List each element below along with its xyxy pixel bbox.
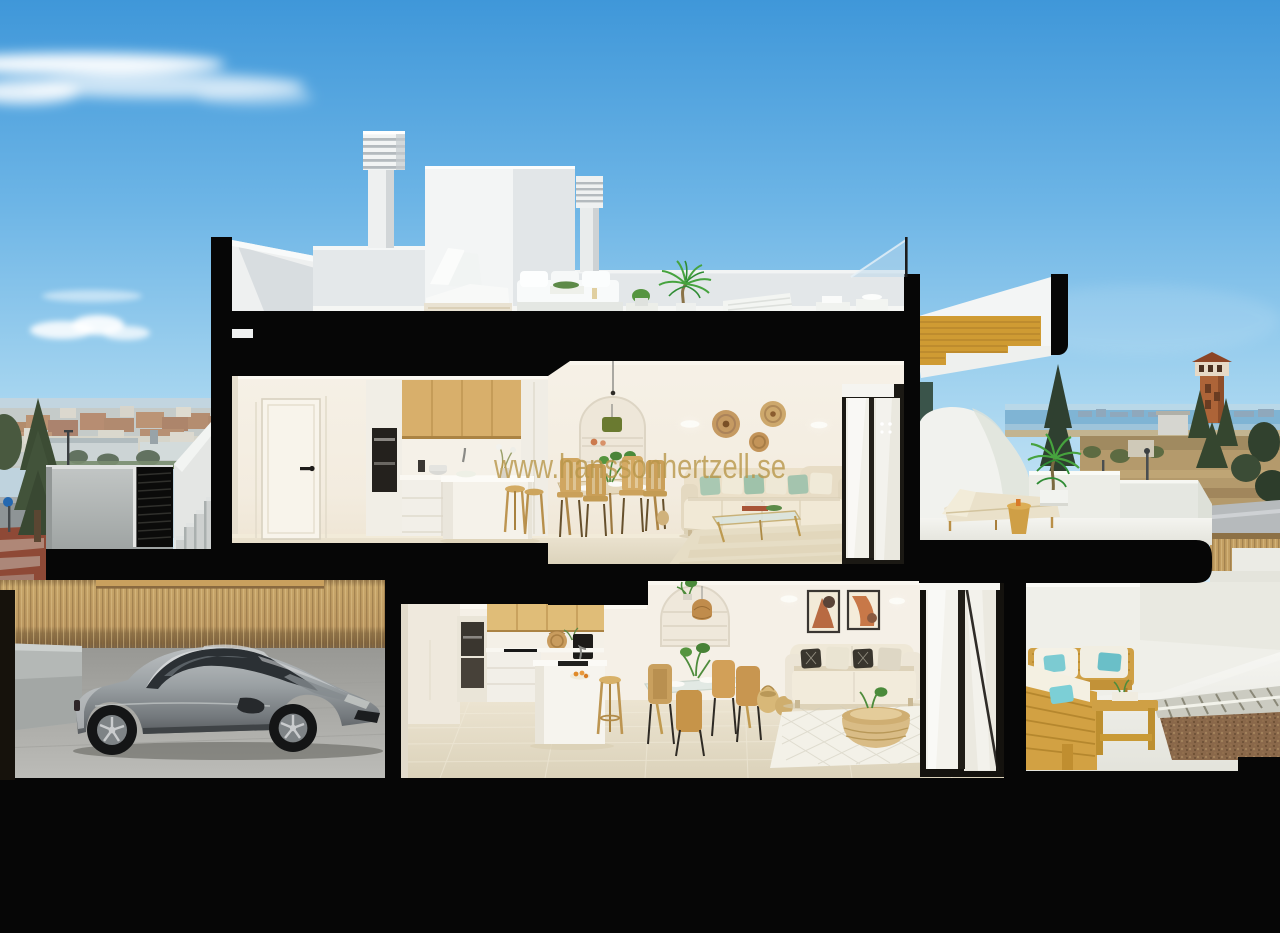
- svg-text:www.hanssonhertzell.se: www.hanssonhertzell.se: [493, 448, 786, 486]
